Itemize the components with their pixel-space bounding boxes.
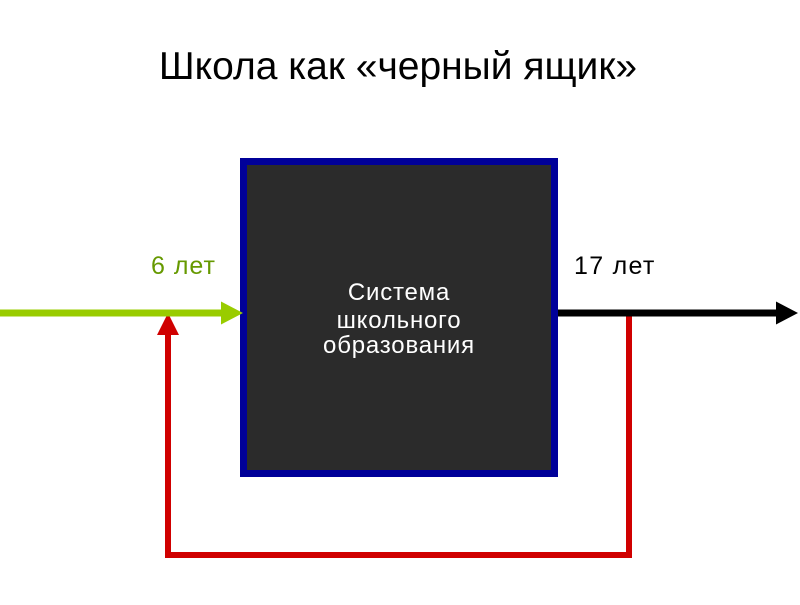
svg-text:Школа как «черный ящик»: Школа как «черный ящик» (159, 45, 637, 88)
svg-text:17 лет: 17 лет (574, 252, 656, 280)
svg-text:6 лет: 6 лет (151, 252, 216, 280)
